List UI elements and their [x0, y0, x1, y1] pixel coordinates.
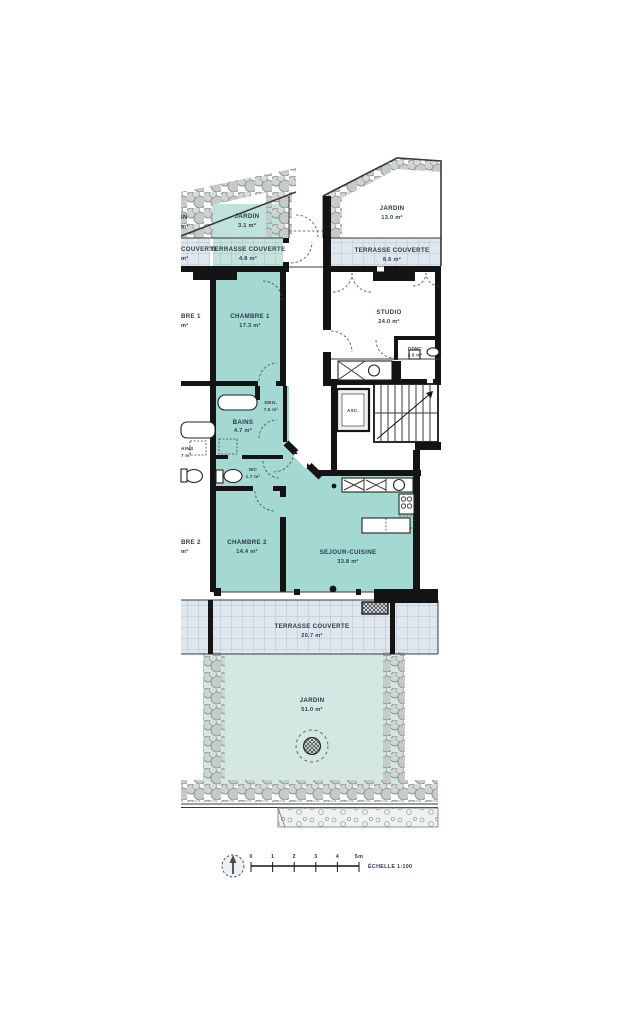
scale-note: ÉCHELLE 1:100 — [368, 862, 412, 870]
bathtub-icon — [218, 395, 257, 410]
label-jardin-small-area: 3.1 m² — [238, 222, 256, 229]
label-asc: ASC. — [347, 408, 359, 413]
ruler-tick-5: 5m — [355, 854, 363, 860]
label-sejour-name: SEJOUR-CUISINE — [320, 549, 377, 556]
label-deg-name: DEG. — [265, 400, 278, 406]
label-terrasse207-name: TERRASSE COUVERTE — [275, 623, 350, 630]
label-partial-jardin-area: m² — [181, 223, 188, 230]
label-partial-chambre1-name: BRE 1 — [181, 313, 201, 320]
label-chambre1-area: 17.3 m² — [239, 322, 260, 329]
door-studio-entry — [331, 331, 352, 352]
sink-icon-sejour — [394, 480, 405, 491]
label-deg-area: 7.6 m² — [264, 407, 279, 412]
wall-dwc-top — [394, 336, 441, 340]
ruler-tick-4: 4 — [336, 854, 339, 860]
wall-dwc-left — [394, 336, 398, 360]
label-bains-area: 4.7 m² — [234, 427, 252, 434]
label-partial-jardin-name: IN — [181, 214, 188, 221]
label-terrasse86-area: 8.6 m² — [383, 256, 401, 263]
hedge-right-column-small — [266, 184, 292, 238]
label-chambre1-name: CHAMBRE 1 — [230, 313, 270, 320]
wall-jog — [415, 442, 441, 450]
kitchenette-counter — [338, 361, 392, 380]
bathtub-icon-neighbor — [181, 422, 215, 438]
label-sejour-area: 33.8 m² — [337, 558, 358, 565]
hedge-jardin-bottom — [181, 780, 438, 802]
wall-hall-east — [283, 386, 287, 442]
scale-bar: 0 1 2 3 4 5m ÉCHELLE 1:100 — [222, 854, 412, 877]
wall-chambre2-right-a — [280, 490, 286, 497]
wall-wc-chambre2-a — [213, 486, 253, 491]
floor-plan-drawing: JARDIN 3.1 m² TERRASSE COUVERTE 4.8 m² J… — [0, 0, 626, 1021]
label-jardin51-name: JARDIN — [300, 697, 325, 704]
toilet-icon — [224, 470, 242, 483]
sink-icon-studio — [369, 365, 380, 376]
door-pivot-dot — [330, 586, 337, 593]
planted-strip-shrubs — [278, 808, 438, 827]
label-partial-bains-name: AINS — [181, 446, 194, 452]
label-jardin13-area: 13.0 m² — [381, 214, 402, 221]
label-wc-name: WC — [249, 467, 258, 473]
tree-trunk — [304, 738, 321, 755]
label-terrasse86-name: TERRASSE COUVERTE — [355, 247, 430, 254]
room-jardin-large — [203, 654, 400, 786]
hedge-jardin-left — [203, 652, 225, 784]
vent-grate-icon — [362, 602, 388, 614]
label-chambre2-area: 14.4 m² — [236, 548, 257, 555]
label-partial-chambre1-area: m² — [181, 322, 188, 329]
floor-plan-page: JARDIN 3.1 m² TERRASSE COUVERTE 4.8 m² J… — [0, 0, 626, 1021]
wall-studio-left-a — [323, 196, 331, 330]
label-studio-name: STUDIO — [376, 309, 401, 316]
label-chambre2-name: CHAMBRE 2 — [227, 539, 267, 546]
door-corridor-entry — [291, 242, 312, 263]
wall-under-chambre1-a — [181, 381, 258, 386]
wall-under-chambre1-b — [276, 381, 286, 386]
stove-icon — [399, 494, 414, 514]
window-post-c — [356, 589, 361, 595]
wall-bains-wc-b — [242, 455, 283, 459]
window-post-a — [214, 588, 221, 596]
label-partial-chambre2-area: m² — [181, 548, 188, 555]
scale-ruler: 0 1 2 3 4 5m ÉCHELLE 1:100 — [249, 854, 412, 872]
wall-terrace86-bottom — [331, 266, 441, 272]
wall-corridor-left-b — [283, 262, 289, 272]
label-studio-area: 24.0 m² — [378, 318, 399, 325]
basin-icon-dwc — [427, 348, 439, 356]
label-partial-terrasse-area: m² — [181, 255, 188, 262]
toilet-icon-neighbor — [186, 470, 203, 483]
wall-pier-studio — [373, 272, 415, 281]
label-terrasse207-area: 20.7 m² — [301, 632, 322, 639]
door-dwc — [376, 340, 394, 358]
terrace-post-right — [390, 600, 395, 654]
wall-sejour-bottom — [374, 589, 438, 603]
label-partial-terrasse-name: COUVERTE — [181, 246, 218, 253]
label-terrasse48-area: 4.8 m² — [239, 255, 257, 262]
label-dwc-name: D/WC — [408, 346, 422, 352]
label-dwc-area: 3.5 m² — [408, 353, 423, 358]
wall-studio-left-b — [323, 352, 331, 386]
stairs — [374, 384, 438, 442]
wall-chambre2-right-b — [280, 517, 286, 592]
wall-studio-right — [435, 272, 441, 384]
wall-core-bottom — [319, 470, 421, 476]
ruler-tick-1: 1 — [271, 854, 274, 860]
hedge-jardin-right — [383, 652, 405, 784]
ruler-tick-2: 2 — [293, 854, 296, 860]
ruler-tick-3: 3 — [314, 854, 317, 860]
ruler-ticks — [251, 862, 359, 872]
wall-notch — [377, 267, 384, 272]
label-partial-bains-area: 7 m² — [181, 453, 191, 458]
toilet-tank — [216, 470, 223, 483]
toilet-tank-neighbor — [181, 469, 187, 482]
terrace-post-left — [208, 600, 213, 654]
label-bains-name: BAINS — [233, 419, 254, 426]
north-arrow-icon — [222, 855, 244, 877]
hedge-left-corner — [181, 204, 213, 238]
label-terrasse48-name: TERRASSE COUVERTE — [211, 246, 286, 253]
door-french-left-a — [333, 273, 352, 292]
label-jardin13-name: JARDIN — [380, 205, 405, 212]
wall-corridor-left-a — [283, 238, 289, 243]
wall-bains-wc-a — [213, 455, 228, 459]
door-french-left-b — [352, 273, 371, 292]
label-jardin51-area: 51.0 m² — [301, 706, 322, 713]
ruler-tick-0: 0 — [249, 854, 252, 860]
site-lines — [181, 804, 438, 808]
door-jardin-gate — [296, 215, 318, 237]
window-post-b — [294, 589, 300, 595]
label-jardin-small-name: JARDIN — [235, 213, 260, 220]
planted-strip — [278, 808, 438, 827]
label-wc-area: 1.7 m² — [246, 474, 261, 479]
wall-chambre1-right — [280, 272, 286, 386]
kitchenette-block — [392, 361, 401, 380]
pivot-dot-kitchen — [332, 484, 337, 489]
label-partial-chambre2-name: BRE 2 — [181, 539, 201, 546]
